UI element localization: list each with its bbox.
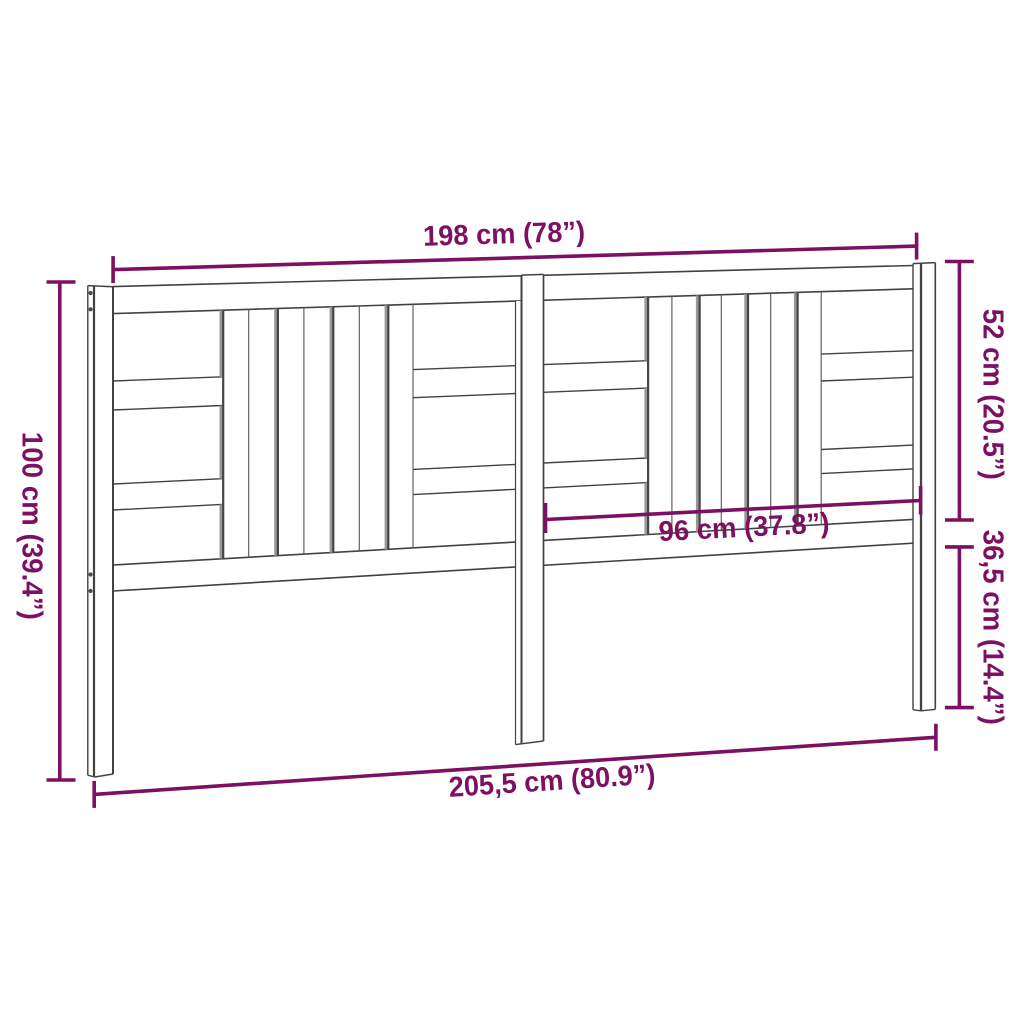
svg-text:52 cm (20.5”): 52 cm (20.5”) <box>977 309 1009 480</box>
svg-text:36,5 cm (14.4”): 36,5 cm (14.4”) <box>977 530 1009 725</box>
svg-text:198 cm (78”): 198 cm (78”) <box>423 216 586 253</box>
svg-text:100 cm (39.4”): 100 cm (39.4”) <box>16 432 48 620</box>
